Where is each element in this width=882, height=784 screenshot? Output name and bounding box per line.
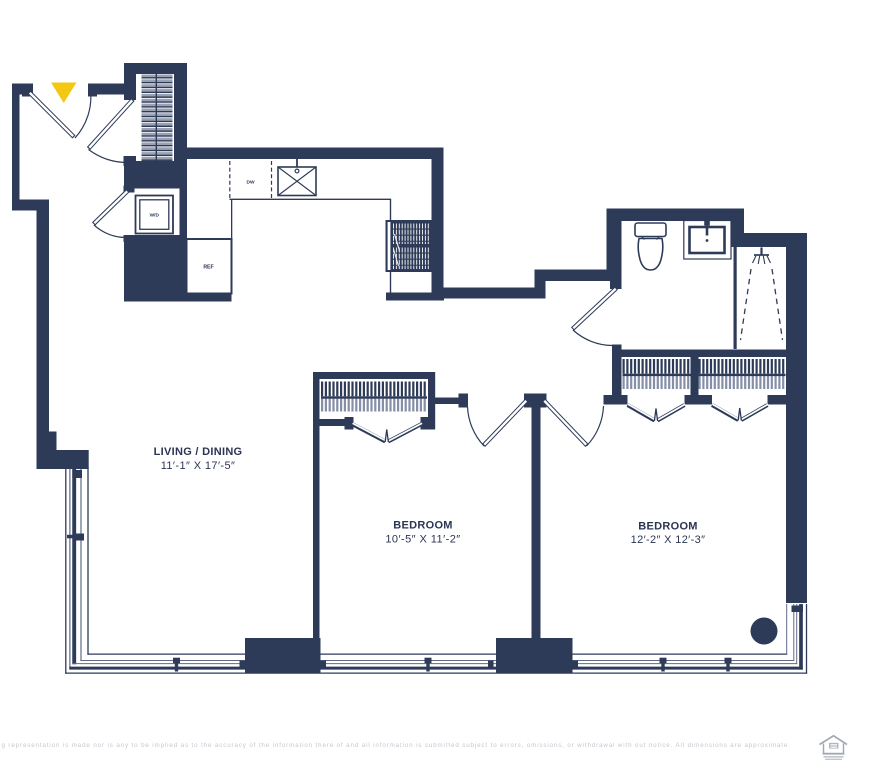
svg-text:W/D: W/D	[150, 213, 160, 219]
svg-text:11′-1″ X 17′-5″: 11′-1″ X 17′-5″	[161, 460, 236, 472]
svg-text:DW: DW	[247, 180, 255, 186]
svg-text:10′-5″ X 11′-2″: 10′-5″ X 11′-2″	[385, 534, 460, 546]
svg-text:BEDROOM: BEDROOM	[393, 520, 453, 532]
svg-text:g representation is made nor i: g representation is made nor is any to b…	[2, 742, 789, 749]
svg-text:BEDROOM: BEDROOM	[638, 521, 698, 533]
svg-text:12′-2″ X 12′-3″: 12′-2″ X 12′-3″	[631, 534, 706, 546]
svg-text:REF: REF	[203, 265, 213, 271]
svg-text:LIVING / DINING: LIVING / DINING	[154, 446, 243, 458]
